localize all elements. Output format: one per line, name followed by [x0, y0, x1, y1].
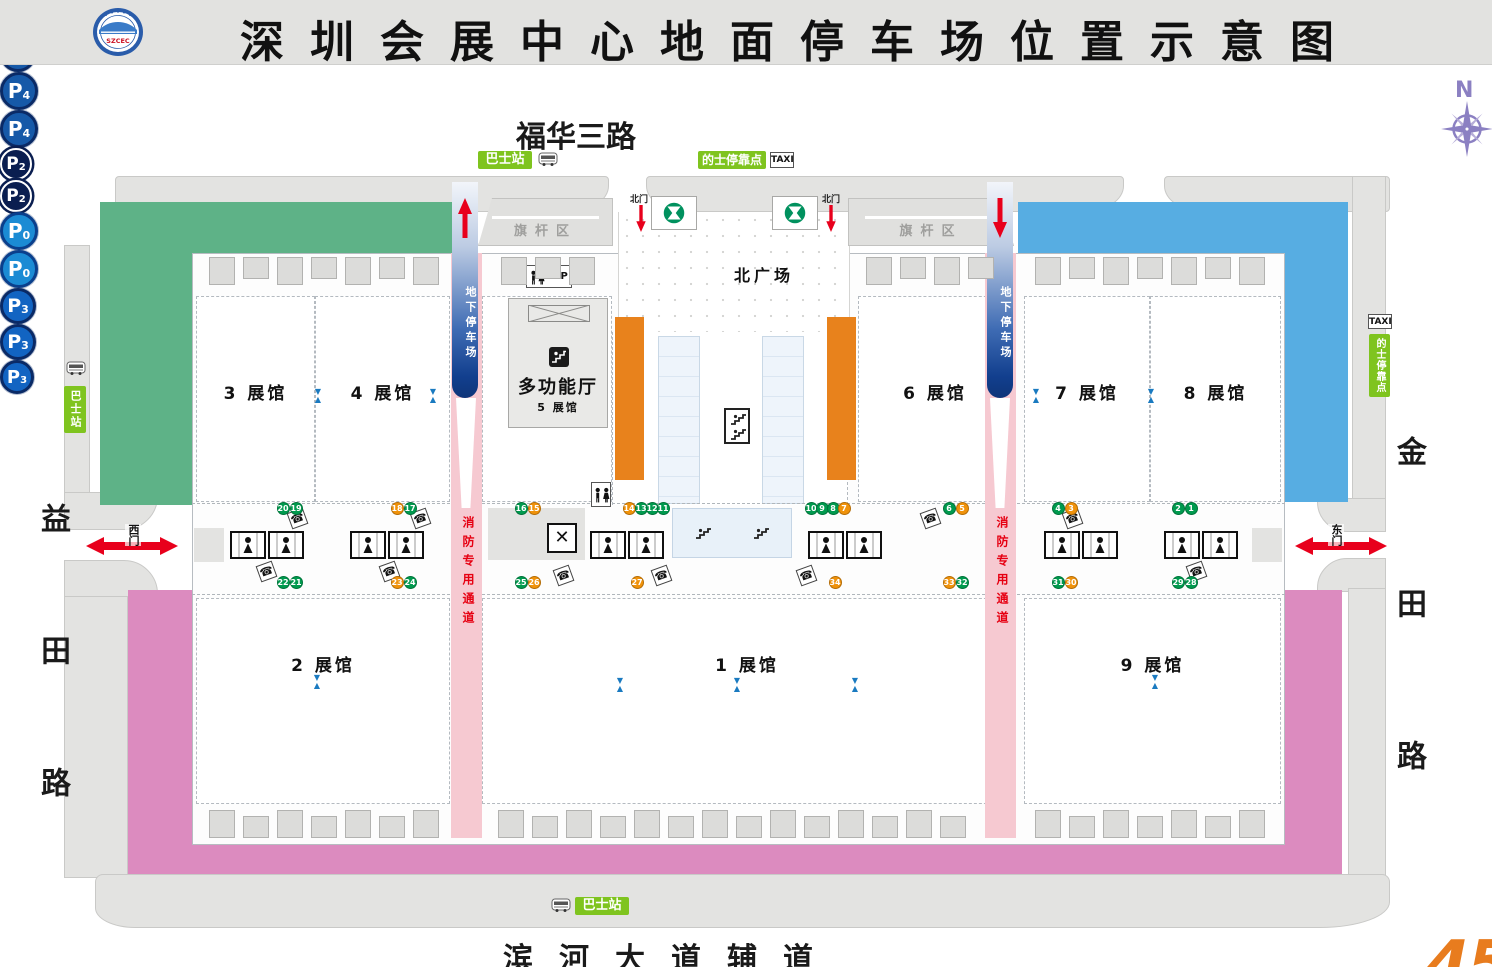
road-right-corner-below-eastgate [1317, 558, 1386, 592]
compass-icon [1438, 100, 1492, 158]
atrium-column-left [658, 336, 700, 504]
hall-service-mark: ▼▲ [1151, 674, 1159, 690]
elevator-icon [846, 531, 882, 559]
dock-box [243, 257, 269, 279]
dock-box [804, 816, 830, 838]
road-right-lower-strip [1348, 588, 1386, 878]
bus-station-label-top: 巴士站 [478, 151, 532, 169]
taxi-stop-label-right: 的士停靠点 [1369, 334, 1390, 397]
elevator-icon [388, 531, 424, 559]
dock-box [1069, 257, 1095, 279]
dock-box [243, 816, 269, 838]
hall-9: 9 展馆 [1024, 598, 1281, 804]
dock-box [906, 810, 932, 838]
atrium-escalator-box [724, 408, 750, 444]
dock-box [1137, 816, 1163, 838]
gate-number-badge: 19 [290, 502, 303, 515]
roof-truss-icon [528, 305, 590, 322]
gate-number-badge: 34 [829, 576, 842, 589]
parking-area-p3-right [1284, 590, 1342, 874]
dock-box [1171, 257, 1197, 285]
elevator-icon [628, 531, 664, 559]
gate-number-badge: 32 [956, 576, 969, 589]
east-gate-label: 东门 [1328, 524, 1344, 546]
hall-8: 8 展馆 [1150, 296, 1281, 502]
taxi-stop-label-top: 的士停靠点 [698, 151, 766, 169]
gate-number-badge: 16 [515, 502, 528, 515]
dock-box [1137, 257, 1163, 279]
dock-box [532, 816, 558, 838]
parking-badge-p4-top: P4 [0, 72, 38, 110]
parking-strip-p0-left [615, 317, 644, 480]
dock-box [569, 257, 595, 285]
hall-service-mark: ▼▲ [851, 677, 859, 693]
gate-number-badge: 29 [1172, 576, 1185, 589]
gate-number-badge: 14 [623, 502, 636, 515]
gate-number-badge: 6 [943, 502, 956, 515]
west-entrance-block [194, 528, 224, 562]
dock-box [566, 810, 592, 838]
restroom-icon [591, 482, 611, 507]
map-title: 深圳会展中心地面停车场位置示意图 [240, 6, 1360, 70]
road-label-jintian: 金田路 [1386, 436, 1430, 892]
road-bottom-band [95, 874, 1390, 928]
dock-box [1035, 257, 1061, 285]
bus-station-label-bottom: 巴士站 [575, 897, 629, 915]
dock-box [379, 257, 405, 279]
dock-box [872, 816, 898, 838]
hall-5-label: 5 展馆 [509, 399, 607, 415]
underground-ramp-left: 地下停车场 [452, 182, 478, 398]
elevator-icon [1044, 531, 1080, 559]
elevator-icon [1164, 531, 1200, 559]
gate-number-badge: 18 [391, 502, 404, 515]
dock-box [900, 257, 926, 279]
gate-number-badge: 5 [956, 502, 969, 515]
fire-lane-label-right: 消防专用通道 [994, 516, 1011, 630]
hall-service-mark: ▼▲ [314, 388, 322, 404]
hall-service-mark: ▼▲ [1032, 388, 1040, 404]
dock-box [1205, 257, 1231, 279]
hall-service-mark: ▼▲ [616, 677, 624, 693]
down-arrow-icon [636, 205, 646, 232]
hall-service-mark: ▼▲ [429, 388, 437, 404]
dock-box [770, 810, 796, 838]
dock-box [736, 816, 762, 838]
parking-badge-p0-right: P0 [0, 250, 38, 288]
dock-box [535, 257, 561, 279]
underground-parking-label: 地下停车场 [452, 286, 478, 361]
dock-box [379, 816, 405, 838]
north-gate-label-left: 北门 [630, 192, 648, 205]
dock-box [1035, 810, 1061, 838]
parking-badge-p3-left: P3 [0, 288, 36, 324]
road-label-binhe-blvd: 滨河大道辅道 [503, 934, 839, 967]
szcec-logo-icon: SZCEC [92, 7, 144, 57]
elevator-icon [350, 531, 386, 559]
gate-number-badge: 26 [528, 576, 541, 589]
taxi-icon: TAXI [1368, 314, 1392, 329]
parking-area-p1-left [100, 202, 192, 505]
parking-badge-p3-bottom: P3 [0, 360, 34, 394]
west-gate-label: 西门 [125, 524, 141, 546]
gate-number-badge: 1 [1185, 502, 1198, 515]
dock-box [311, 816, 337, 838]
dock-box [277, 257, 303, 285]
parking-badge-p4-right: P4 [0, 110, 38, 148]
parking-badge-p2-right: P2 [0, 180, 32, 212]
dock-box [600, 816, 626, 838]
gate-number-badge: 3 [1065, 502, 1078, 515]
dock-box [277, 810, 303, 838]
parking-strip-p0-right [827, 317, 856, 480]
dock-box [866, 257, 892, 285]
gate-number-badge: 7 [838, 502, 851, 515]
east-entrance-block [1252, 528, 1282, 562]
dock-box [668, 816, 694, 838]
elevator-icon [808, 531, 844, 559]
gate-number-badge: 25 [515, 576, 528, 589]
dock-box [209, 257, 235, 285]
gate-number-badge: 4 [1052, 502, 1065, 515]
north-gate-label-right: 北门 [822, 192, 840, 205]
parking-map: SZCEC 深圳会展中心地面停车场位置示意图 N 福华三路 滨河大道辅道 益田路… [0, 0, 1492, 967]
hall-service-mark: ▼▲ [733, 677, 741, 693]
dock-box [501, 257, 527, 285]
underground-parking-label: 地下停车场 [987, 286, 1013, 361]
dock-box [1103, 257, 1129, 285]
svg-text:SZCEC: SZCEC [106, 37, 130, 45]
north-plaza-label: 北广场 [684, 262, 844, 286]
escalator-icon [695, 526, 712, 540]
escalator-icon [753, 526, 770, 540]
gate-number-badge: 21 [290, 576, 303, 589]
road-label-yitian: 益田路 [30, 503, 74, 899]
multifunction-hall-label: 多功能厅 [509, 373, 607, 399]
north-gate-right [772, 196, 818, 230]
parking-area-p3-left [128, 590, 196, 874]
corner-mark: 45 [1425, 928, 1492, 967]
escalator-icon [730, 427, 747, 441]
dock-box [311, 257, 337, 279]
gate-number-badge: 33 [943, 576, 956, 589]
dock-box [498, 810, 524, 838]
parking-badge-p2-left: P2 [0, 148, 32, 180]
elevator-icon [590, 531, 626, 559]
parking-area-p4-right [1283, 202, 1348, 502]
escalator-icon [730, 412, 747, 426]
hall-service-mark: ▼▲ [1147, 388, 1155, 404]
dock-box [1069, 816, 1095, 838]
dock-box [702, 810, 728, 838]
dock-box [838, 810, 864, 838]
multifunction-hall: 多功能厅 5 展馆 [508, 298, 608, 428]
dock-box [934, 257, 960, 285]
parking-badge-p3-right: P3 [0, 324, 36, 360]
dock-box [1239, 810, 1265, 838]
dock-box [1239, 257, 1265, 285]
north-gate-left [651, 196, 697, 230]
dock-box [1103, 810, 1129, 838]
gate-number-badge: 2 [1172, 502, 1185, 515]
gate-number-badge: 30 [1065, 576, 1078, 589]
down-arrow-icon [826, 205, 836, 232]
bus-station-label-left: 巴士站 [64, 386, 86, 433]
gate-number-badge: 28 [1185, 576, 1198, 589]
flag-area-label: 旗杆区 [479, 220, 612, 239]
dock-box [1171, 810, 1197, 838]
metro-icon [783, 201, 807, 225]
gate-number-badge: 24 [404, 576, 417, 589]
dock-box [968, 257, 994, 279]
elevator-icon [268, 531, 304, 559]
gate-number-badge: 11 [657, 502, 670, 515]
hall-service-mark: ▼▲ [313, 674, 321, 690]
hall-1: 1 展馆 [482, 598, 1012, 804]
road-label-fuhua-3rd: 福华三路 [516, 112, 636, 156]
parking-badge-p0-left: P0 [0, 212, 38, 250]
gate-number-badge: 22 [277, 576, 290, 589]
gate-number-badge: 31 [1052, 576, 1065, 589]
hall-7: 7 展馆 [1024, 296, 1150, 502]
dock-box [209, 810, 235, 838]
escalator-icon [549, 347, 569, 367]
taxi-icon: TAXI [770, 152, 794, 168]
down-arrow-icon [993, 198, 1007, 238]
corridor-escalator-hall [672, 508, 792, 558]
elevator-icon [1202, 531, 1238, 559]
dock-box [413, 257, 439, 285]
hall-2: 2 展馆 [196, 598, 450, 804]
up-arrow-icon [458, 198, 472, 238]
closed-x-icon: ✕ [547, 523, 577, 553]
dock-box [1205, 816, 1231, 838]
gate-number-badge: 15 [528, 502, 541, 515]
gate-number-badge: 23 [391, 576, 404, 589]
atrium-column-right [762, 336, 804, 504]
dock-box [345, 810, 371, 838]
gate-number-badge: 27 [631, 576, 644, 589]
dock-box [345, 257, 371, 285]
dock-box [940, 816, 966, 838]
metro-icon [662, 201, 686, 225]
gate-number-badge: 17 [404, 502, 417, 515]
fire-lane-label-left: 消防专用通道 [460, 516, 477, 630]
dock-box [413, 810, 439, 838]
flag-area-left: 旗杆区 [478, 198, 613, 246]
bus-icon [538, 151, 558, 167]
elevator-icon [230, 531, 266, 559]
underground-ramp-right: 地下停车场 [987, 182, 1013, 398]
bus-icon [551, 897, 571, 913]
dock-box [634, 810, 660, 838]
bus-icon [66, 360, 86, 376]
elevator-icon [1082, 531, 1118, 559]
hall-3: 3 展馆 [196, 296, 315, 502]
gate-number-badge: 20 [277, 502, 290, 515]
